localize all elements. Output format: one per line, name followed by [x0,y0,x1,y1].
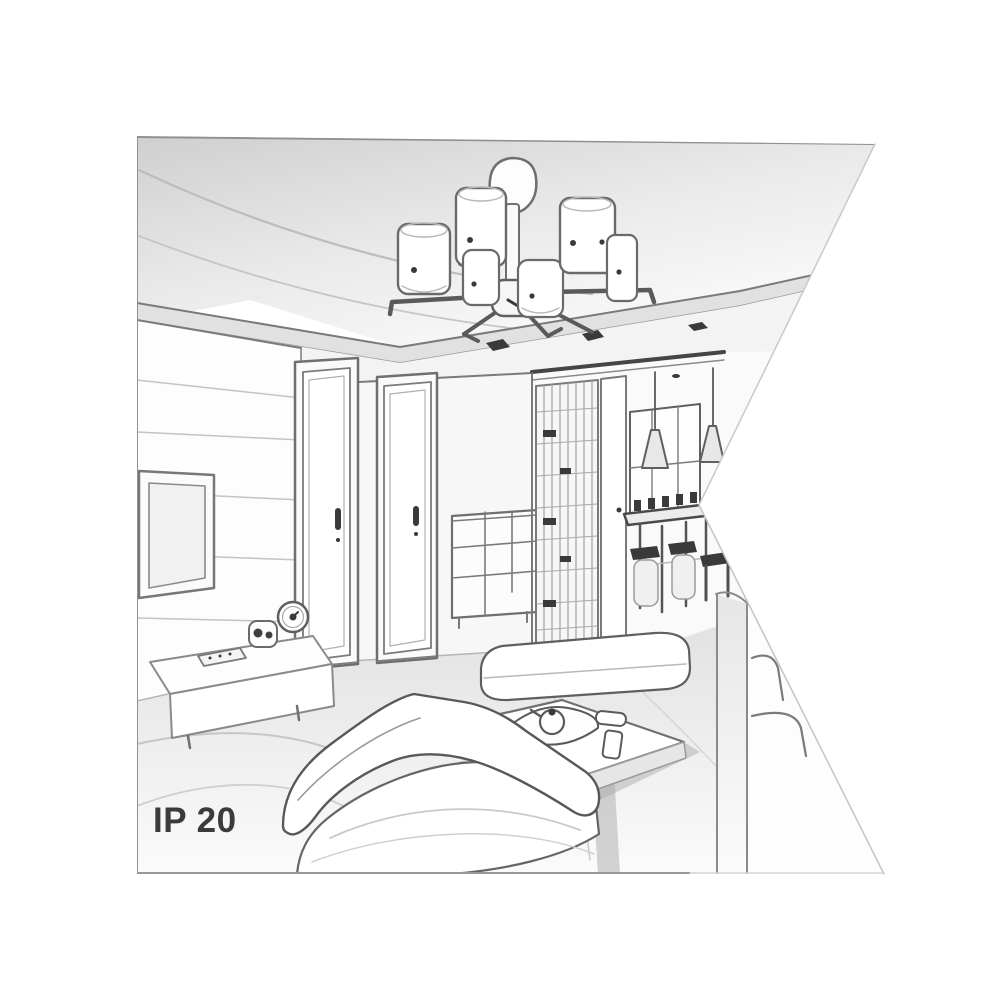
ip-rating-label: IP 20 [153,801,237,841]
speaker [249,621,277,647]
door-handle-icon [335,508,341,530]
wardrobe [536,380,598,654]
room-sketch [0,0,1000,1000]
door-right [377,373,437,663]
chest-of-drawers [452,510,537,628]
product-illustration: IP 20 [0,0,1000,1000]
tv [139,471,214,598]
plate [595,710,626,726]
armchair-right [716,592,884,874]
door-handle-icon [413,506,419,526]
room-sketch-svg [0,0,1000,1000]
cup [602,730,623,759]
door-handle-icon [617,508,622,513]
hallway-door [601,376,626,659]
spotlight-icon [672,374,680,378]
clock [278,602,308,632]
